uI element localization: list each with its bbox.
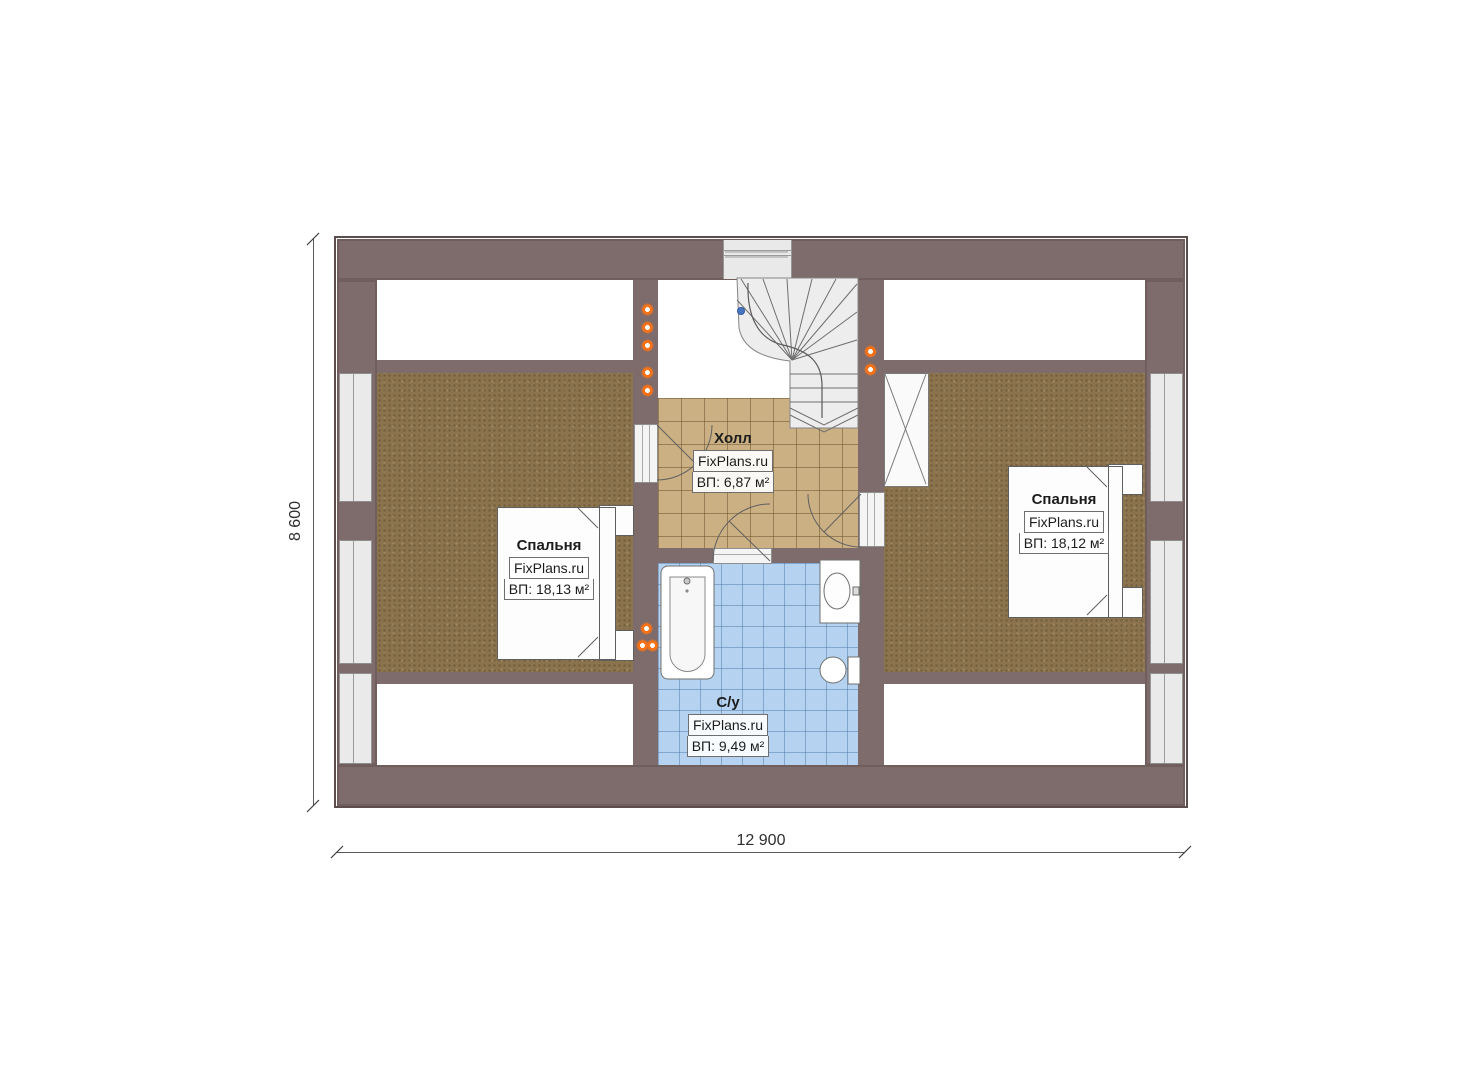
window-right-3 (1150, 673, 1183, 764)
window-left-2 (339, 540, 372, 664)
downlight-icon (641, 384, 654, 397)
dimension-line-horizontal (337, 852, 1185, 853)
door-jamb-bedroom-right (859, 492, 885, 547)
room-area: ВП: 6,87 м² (692, 472, 775, 493)
door-jamb-bedroom-left (634, 424, 658, 483)
roof-band-bottom-left (377, 684, 633, 765)
knee-wall-top-right (884, 360, 1145, 373)
downlight-icon (641, 303, 654, 316)
door-jamb-bathroom (713, 548, 772, 564)
room-area: ВП: 9,49 м² (687, 736, 770, 757)
knee-wall-bottom-left (377, 672, 633, 684)
room-label-bedroom-right: Спальня FixPlans.ru ВП: 18,12 м² (1008, 491, 1120, 554)
room-area: ВП: 18,12 м² (1019, 533, 1109, 554)
downlight-icon (641, 366, 654, 379)
window-left-3 (339, 673, 372, 764)
brand-watermark: FixPlans.ru (688, 714, 768, 736)
room-name: Спальня (517, 537, 582, 554)
room-name: Холл (714, 430, 752, 447)
downlight-icon (864, 363, 877, 376)
dimension-height-label: 8 600 (287, 491, 305, 551)
room-label-bathroom: С/у FixPlans.ru ВП: 9,49 м² (683, 694, 773, 757)
room-area: ВП: 18,13 м² (504, 579, 594, 600)
stairwell-floor (658, 280, 858, 398)
roof-band-bottom-right (884, 684, 1145, 765)
room-label-hall: Холл FixPlans.ru ВП: 6,87 м² (688, 430, 778, 493)
wall-bedroom-left-partition (633, 280, 658, 765)
downlight-icon (641, 339, 654, 352)
knee-wall-top-left (377, 360, 633, 373)
dimension-width-label: 12 900 (711, 832, 811, 850)
downlight-icon (646, 639, 659, 652)
wall-bottom (337, 765, 1185, 806)
window-stairwell-top (723, 240, 792, 279)
dimension-line-vertical (313, 239, 314, 806)
room-name: С/у (716, 694, 739, 711)
downlight-icon (640, 622, 653, 635)
vent-shaft (884, 373, 929, 487)
downlight-icon (641, 321, 654, 334)
window-right-1 (1150, 373, 1183, 502)
floor-plan: Спальня FixPlans.ru ВП: 18,13 м² Спальня… (0, 0, 1474, 1080)
room-label-bedroom-left: Спальня FixPlans.ru ВП: 18,13 м² (493, 537, 605, 600)
downlight-icon (864, 345, 877, 358)
knee-wall-bottom-right (884, 672, 1145, 684)
window-left-1 (339, 373, 372, 502)
brand-watermark: FixPlans.ru (1024, 511, 1104, 533)
brand-watermark: FixPlans.ru (693, 450, 773, 472)
roof-band-top-right (884, 280, 1145, 360)
brand-watermark: FixPlans.ru (509, 557, 589, 579)
window-right-2 (1150, 540, 1183, 664)
roof-band-top-left (377, 280, 633, 360)
room-name: Спальня (1032, 491, 1097, 508)
